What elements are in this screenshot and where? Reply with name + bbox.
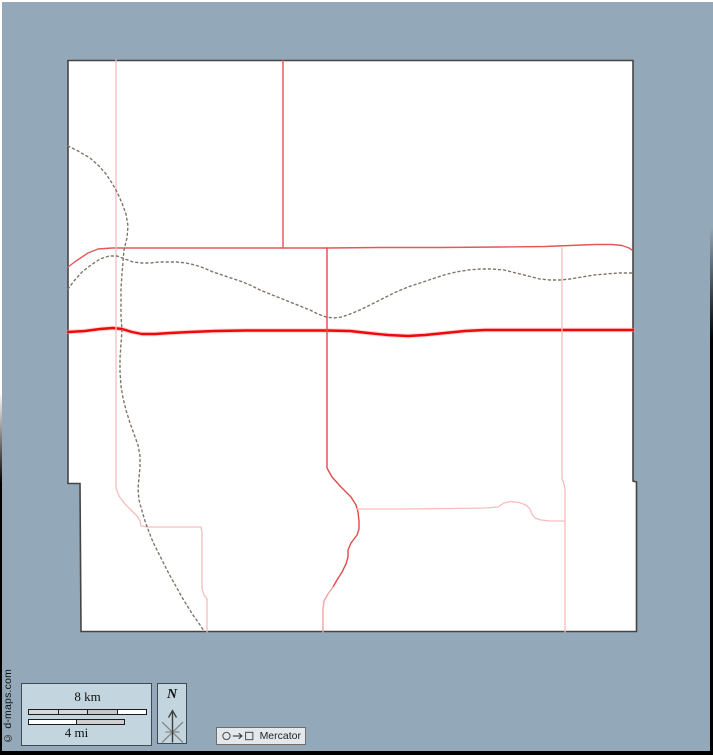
- scale-km-bar: [28, 709, 147, 715]
- compass-rose-icon: [158, 703, 188, 745]
- scale-km-label: 8 km: [28, 690, 147, 703]
- scale-bar-segment: [117, 710, 147, 714]
- scale-bar-segment: [29, 710, 58, 714]
- scale-bar-box: 8 km 4 mi: [21, 683, 152, 746]
- north-arrow-box: N: [157, 683, 187, 744]
- projection-label: Mercator: [260, 731, 301, 741]
- map-screenshot: 8 km 4 mi N Mercator © d-maps.com: [0, 0, 713, 755]
- county-map: [0, 0, 713, 755]
- projection-box: Mercator: [216, 727, 306, 745]
- circle-to-square-projection-icon: [221, 730, 256, 742]
- scale-bar-segment: [29, 720, 76, 724]
- north-label: N: [158, 688, 186, 702]
- copyright-text: © d-maps.com: [2, 664, 16, 748]
- scale-mi-label: 4 mi: [28, 726, 125, 739]
- scale-bar-segment: [58, 710, 88, 714]
- scale-bar-segment: [76, 720, 124, 724]
- county-boundary: [68, 61, 637, 632]
- scale-bar-segment: [87, 710, 117, 714]
